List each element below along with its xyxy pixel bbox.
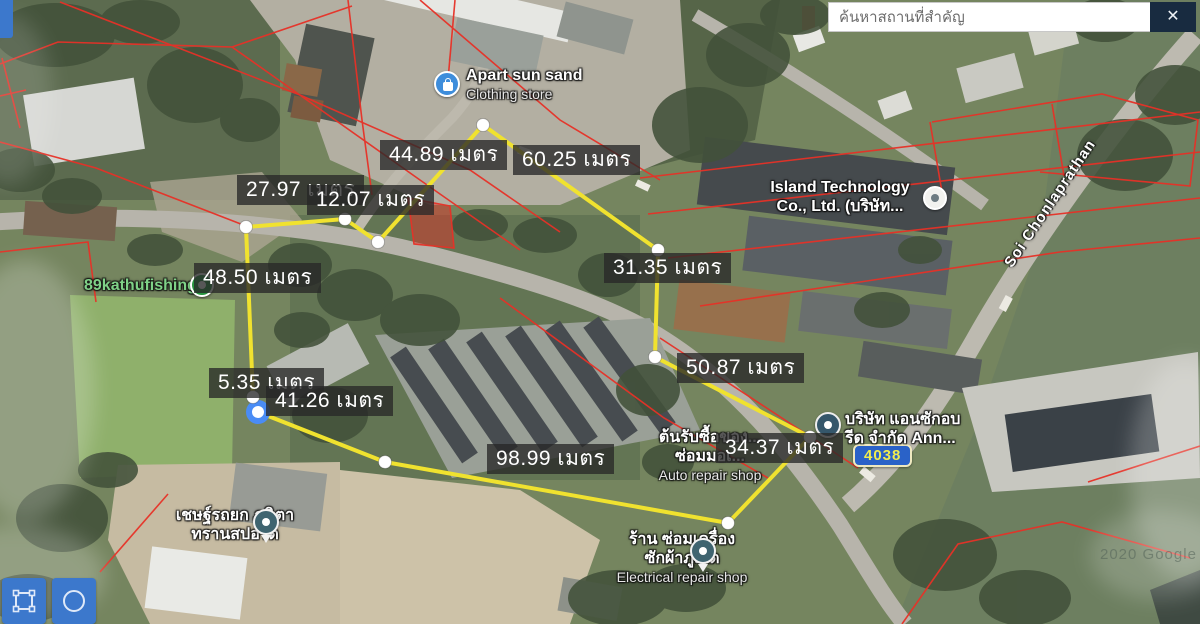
measure-distance-label: 48.50 เมตร	[194, 263, 321, 293]
draw-tools	[2, 578, 96, 624]
measure-vertex[interactable]	[722, 517, 735, 530]
measure-distance-label: 12.07 เมตร	[307, 185, 434, 215]
measure-distance-label: 50.87 เมตร	[677, 353, 804, 383]
map-stage[interactable]: Apart sun sand Clothing store Island Tec…	[0, 0, 1200, 624]
draw-polygon-button[interactable]	[2, 578, 46, 624]
measure-distance-label: 31.35 เมตร	[604, 253, 731, 283]
circle-tool-icon	[60, 587, 88, 615]
measure-distance-label: 41.26 เมตร	[266, 386, 393, 416]
measure-distance-label: 60.25 เมตร	[513, 145, 640, 175]
close-search-button[interactable]: ✕	[1150, 2, 1196, 32]
measure-distance-label: 44.89 เมตร	[380, 140, 507, 170]
search-bar: ✕	[828, 2, 1196, 32]
draw-circle-button[interactable]	[52, 578, 96, 624]
polygon-tool-icon	[10, 587, 38, 615]
close-icon: ✕	[1166, 8, 1179, 25]
measure-vertex-active[interactable]	[249, 403, 267, 421]
measure-vertex[interactable]	[379, 456, 392, 469]
partial-toolbar	[0, 0, 13, 38]
measure-vertex[interactable]	[372, 236, 385, 249]
measure-vertex[interactable]	[477, 119, 490, 132]
measure-distance-label: 34.37 เมตร	[716, 433, 843, 463]
measurement-overlay	[0, 0, 1200, 624]
measure-distance-label: 98.99 เมตร	[487, 444, 614, 474]
search-input[interactable]	[828, 2, 1150, 32]
measure-vertex[interactable]	[649, 351, 662, 364]
measure-vertex[interactable]	[240, 221, 253, 234]
